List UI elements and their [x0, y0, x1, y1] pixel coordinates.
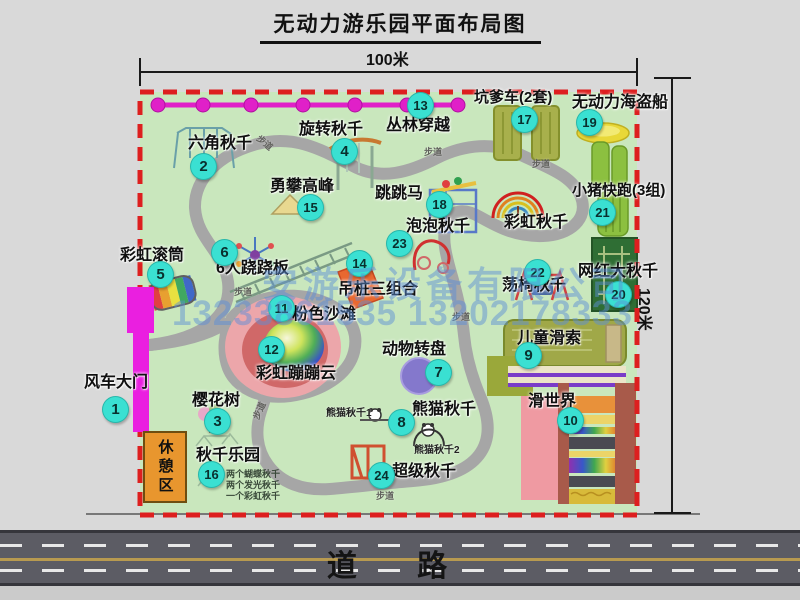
label-pig-run: 小猪快跑(3组) [572, 183, 665, 199]
badge-5: 5 [147, 261, 174, 288]
badge-21: 21 [589, 199, 616, 226]
label-hanging-post-combo: 吊桩三组合 [338, 282, 418, 299]
label-panda-swing-2: 熊猫秋千2 [414, 441, 460, 456]
rest-area-label: 休憩区 [155, 439, 176, 496]
label-rainbow-bounce-cloud: 彩虹蹦蹦云 [256, 366, 336, 383]
road-lower-shoulder [0, 586, 800, 600]
badge-24: 24 [368, 462, 395, 489]
walkway-tag: 步道 [532, 157, 550, 170]
badge-13: 13 [407, 92, 434, 119]
badge-7: 7 [425, 359, 452, 386]
label-jungle-crossing: 丛林穿越 [386, 118, 450, 135]
badge-12: 12 [258, 336, 285, 363]
badge-17: 17 [511, 106, 538, 133]
badge-10: 10 [557, 407, 584, 434]
label-pink-beach: 粉色沙滩 [292, 307, 356, 324]
label-jumping-horse: 跳跳马 [375, 186, 423, 203]
label-peak-climbing: 勇攀高峰 [270, 179, 334, 196]
park-map-graphic [0, 0, 800, 600]
label-pit-cart: 坑爹车(2套) [474, 90, 552, 106]
badge-4: 4 [331, 138, 358, 165]
label-hexagon-swing: 六角秋千 [188, 136, 252, 153]
label-rainbow-roller: 彩虹滚筒 [120, 248, 184, 265]
road-label: 道 路 [0, 541, 800, 585]
walkway-tag: 步道 [424, 145, 442, 158]
badge-9: 9 [515, 342, 542, 369]
label-rotating-swing: 旋转秋千 [299, 122, 363, 139]
label-super-swing: 超级秋千 [392, 464, 456, 481]
badge-1: 1 [102, 396, 129, 423]
label-big-net-swing: 网红大秋千 [578, 264, 658, 281]
badge-11: 11 [268, 295, 295, 322]
badge-23: 23 [386, 230, 413, 257]
walkway-tag: 步道 [452, 310, 470, 323]
swing-park-note-3: 一个彩虹秋千 [226, 489, 280, 502]
badge-15: 15 [297, 194, 324, 221]
badge-20: 20 [605, 281, 632, 308]
label-bubble-swing: 泡泡秋千 [406, 219, 470, 236]
badge-19: 19 [576, 109, 603, 136]
walkway-tag: 步道 [234, 285, 252, 298]
badge-8: 8 [388, 409, 415, 436]
badge-18: 18 [426, 191, 453, 218]
label-animal-carousel: 动物转盘 [382, 342, 446, 359]
label-panda-swing-1: 熊猫秋千1 [326, 404, 372, 419]
rest-area: 休憩区 [143, 431, 187, 503]
badge-22: 22 [524, 259, 551, 286]
label-rainbow-swing: 彩虹秋千 [504, 215, 568, 232]
park-map-screenshot: 无动力游乐园平面布局图 100米 120米 [0, 0, 800, 600]
badge-14: 14 [346, 250, 373, 277]
label-panda-swing: 熊猫秋千 [412, 402, 476, 419]
badge-16: 16 [198, 461, 225, 488]
walkway-tag: 步道 [376, 489, 394, 502]
badge-3: 3 [204, 408, 231, 435]
badge-2: 2 [190, 153, 217, 180]
road: 道 路 [0, 530, 800, 586]
label-windmill-gate: 风车大门 [84, 375, 148, 392]
badge-6: 6 [211, 239, 238, 266]
